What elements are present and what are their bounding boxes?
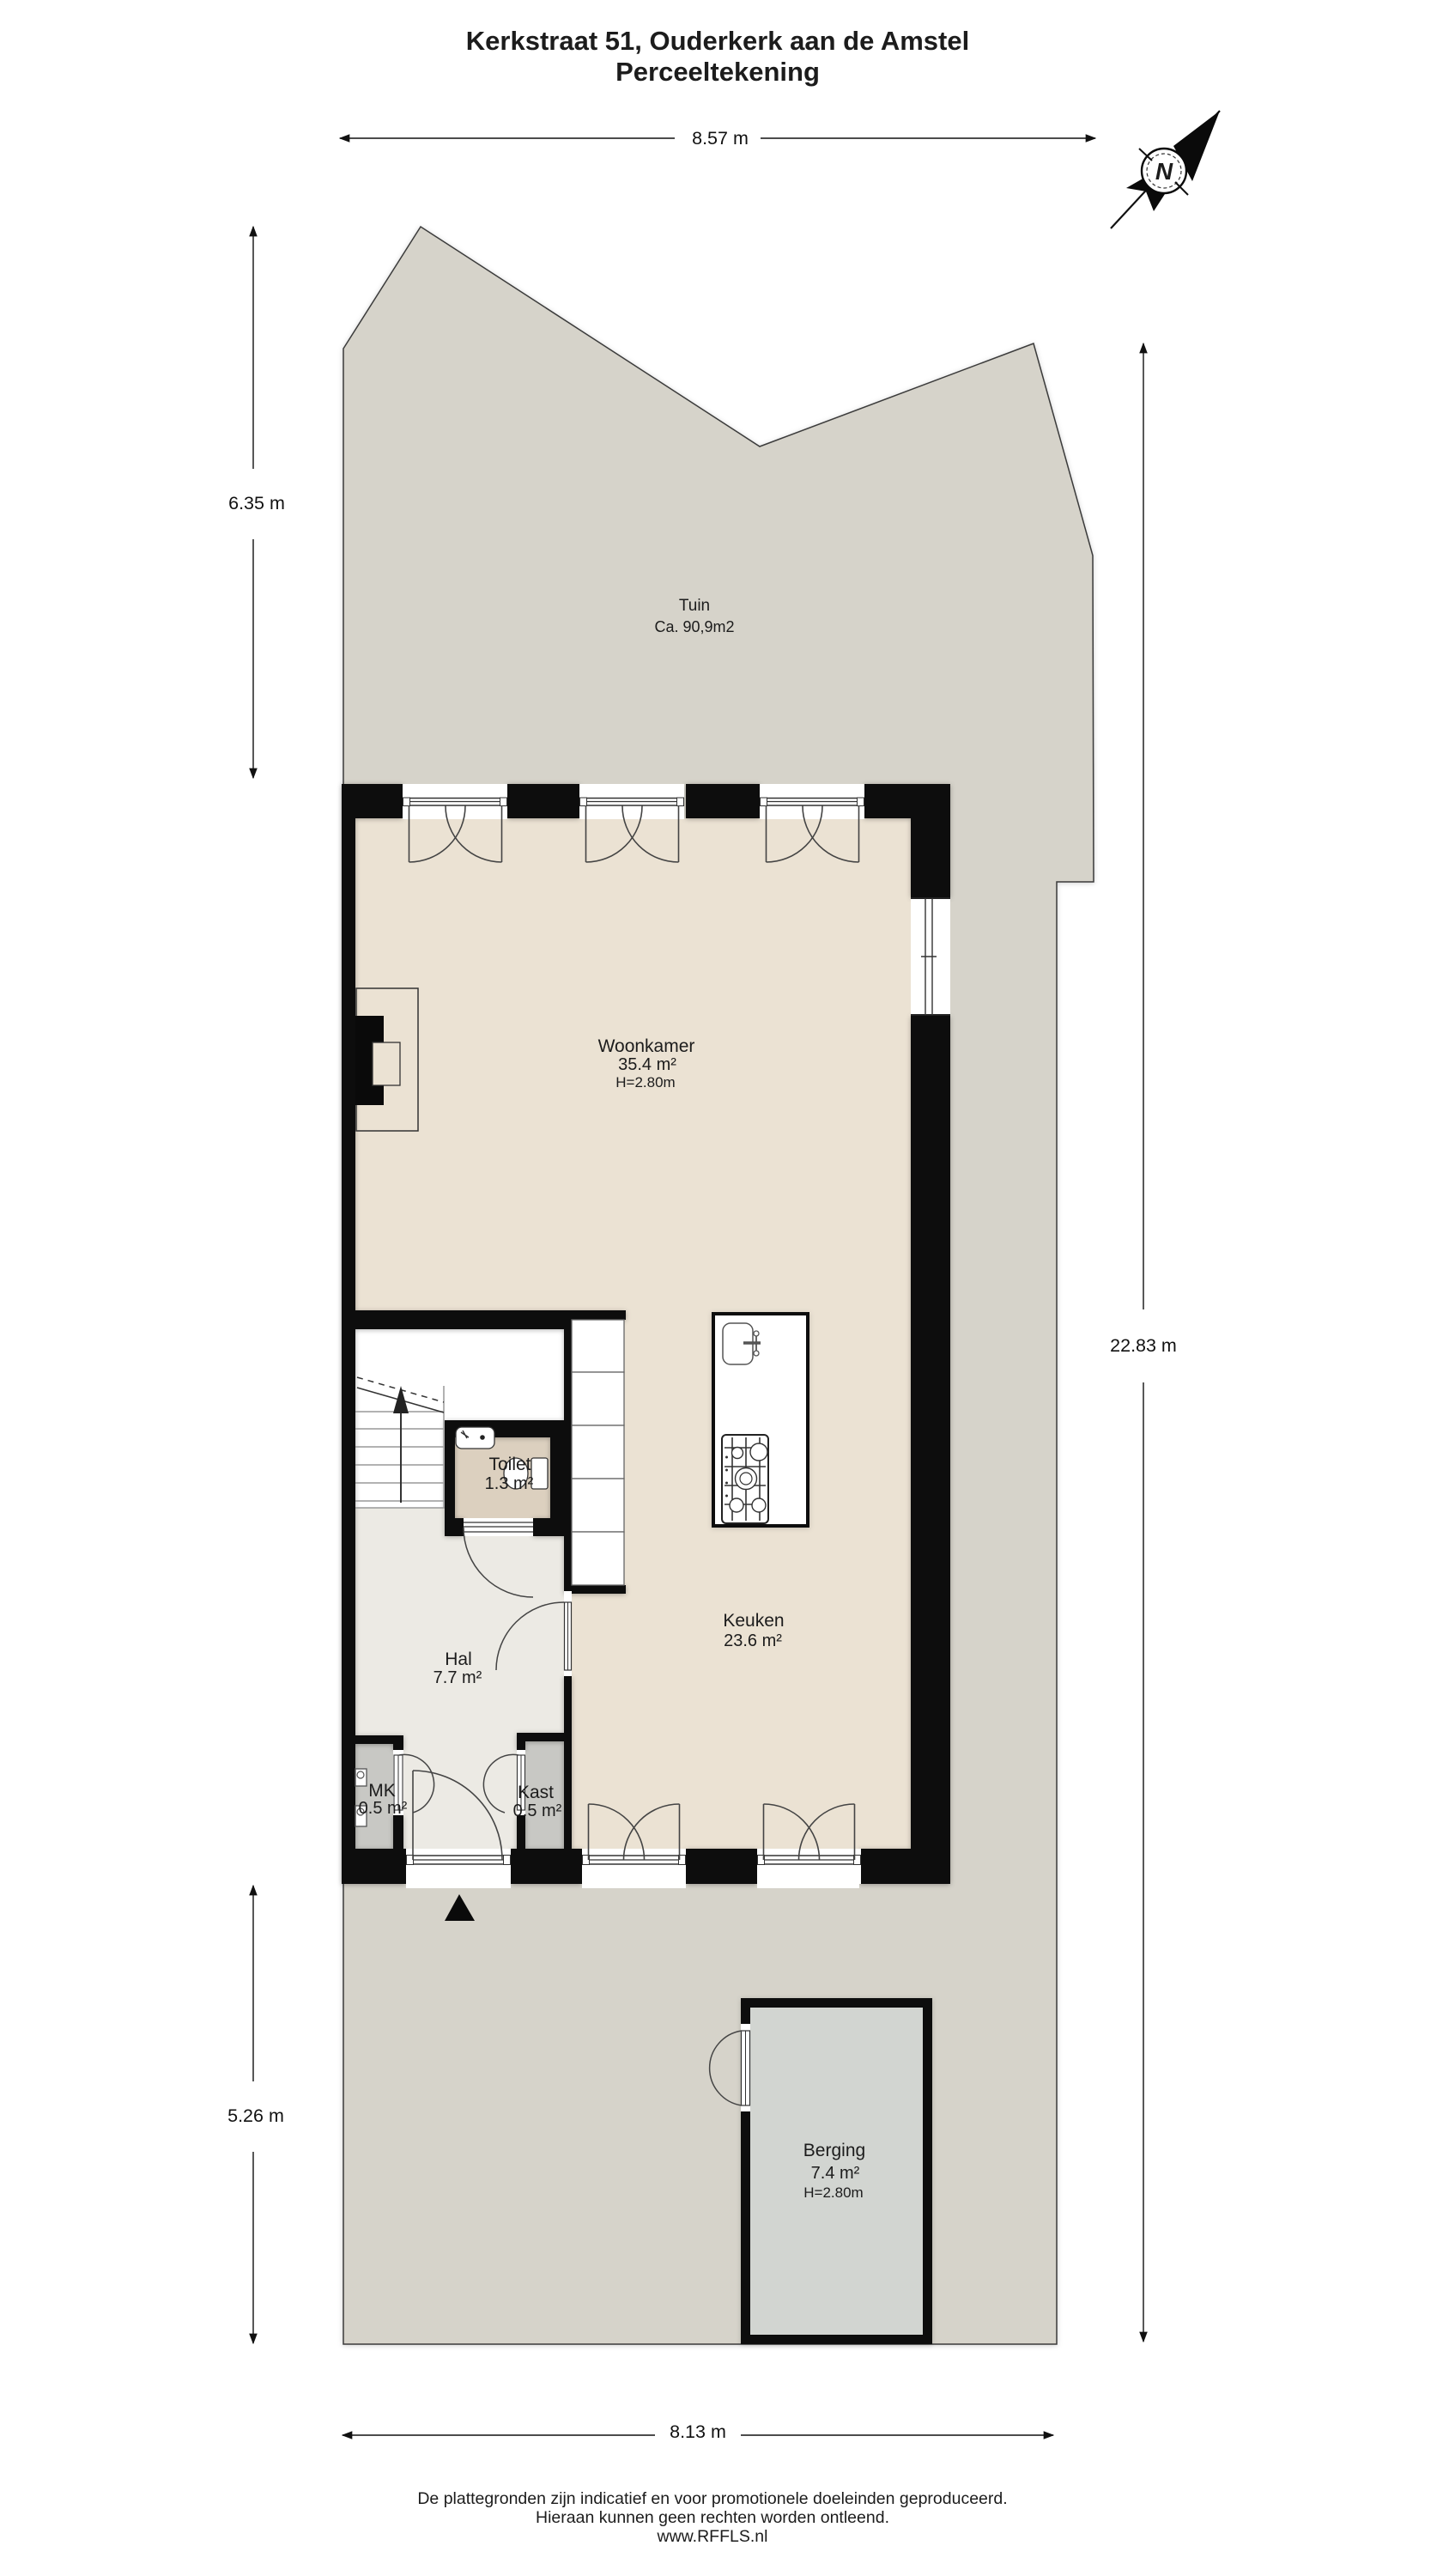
- svg-text:0.5 m²: 0.5 m²: [359, 1799, 408, 1818]
- svg-text:0.5 m²: 0.5 m²: [513, 1801, 562, 1820]
- svg-text:H=2.80m: H=2.80m: [803, 2184, 863, 2201]
- svg-text:22.83 m: 22.83 m: [1110, 1335, 1177, 1356]
- svg-text:Hal: Hal: [445, 1649, 472, 1669]
- svg-text:Perceeltekening: Perceeltekening: [615, 57, 820, 87]
- svg-text:7.7 m²: 7.7 m²: [433, 1668, 482, 1687]
- svg-text:1.3 m²: 1.3 m²: [485, 1474, 534, 1493]
- svg-text:6.35 m: 6.35 m: [228, 493, 285, 513]
- svg-text:Kast: Kast: [518, 1783, 554, 1802]
- svg-text:Keuken: Keuken: [723, 1611, 784, 1631]
- svg-text:Toilet: Toilet: [488, 1455, 530, 1474]
- svg-text:N: N: [1155, 158, 1173, 185]
- svg-text:Woonkamer: Woonkamer: [598, 1036, 695, 1056]
- svg-text:5.26 m: 5.26 m: [227, 2105, 284, 2126]
- svg-text:De plattegronden zijn indicati: De plattegronden zijn indicatief en voor…: [417, 2489, 1007, 2508]
- svg-text:Berging: Berging: [803, 2141, 865, 2160]
- svg-text:Kerkstraat 51, Ouderkerk aan d: Kerkstraat 51, Ouderkerk aan de Amstel: [466, 26, 969, 56]
- svg-text:23.6 m²: 23.6 m²: [724, 1631, 782, 1650]
- svg-text:8.57 m: 8.57 m: [692, 128, 749, 149]
- svg-text:8.13 m: 8.13 m: [670, 2421, 726, 2442]
- svg-text:Tuin: Tuin: [679, 597, 710, 615]
- svg-text:www.RFFLS.nl: www.RFFLS.nl: [657, 2527, 768, 2546]
- svg-text:Hieraan kunnen geen rechten wo: Hieraan kunnen geen rechten worden ontle…: [536, 2508, 889, 2527]
- svg-text:MK: MK: [368, 1781, 396, 1801]
- svg-text:Ca. 90,9m2: Ca. 90,9m2: [654, 618, 734, 635]
- svg-text:35.4 m²: 35.4 m²: [618, 1055, 676, 1074]
- svg-text:7.4 m²: 7.4 m²: [811, 2164, 860, 2183]
- svg-text:H=2.80m: H=2.80m: [615, 1074, 675, 1091]
